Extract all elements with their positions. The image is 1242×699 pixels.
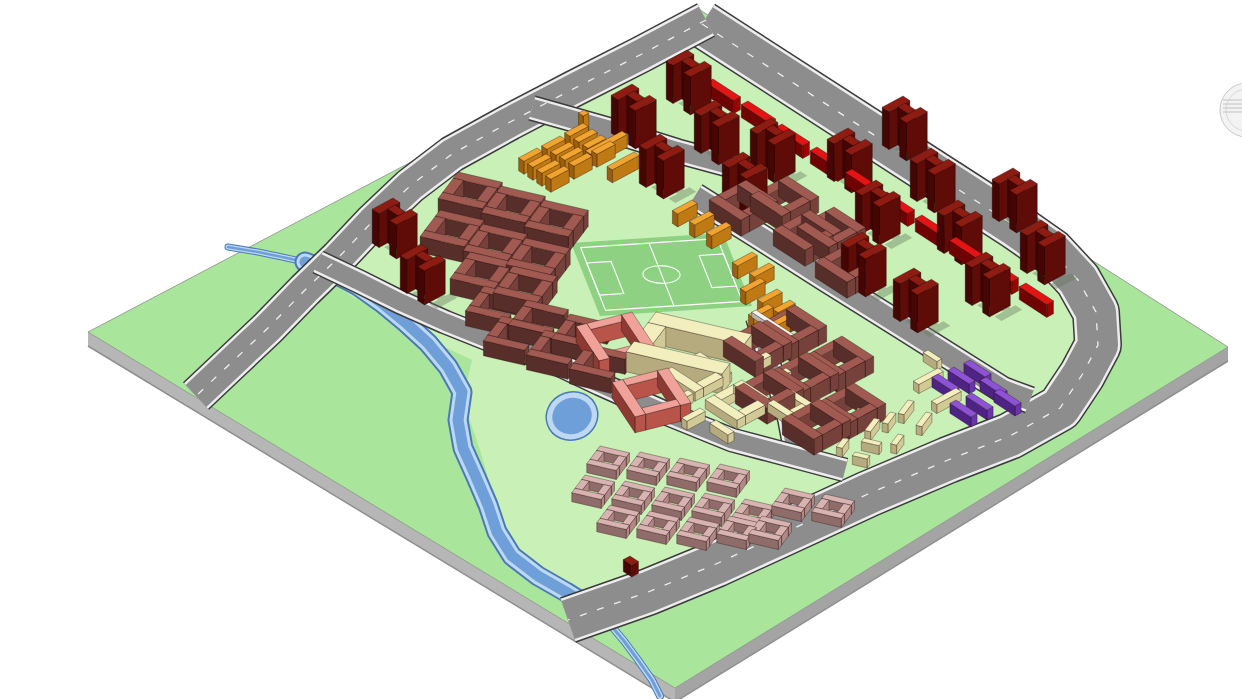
building-block[interactable]	[418, 266, 425, 304]
building-block[interactable]	[882, 107, 889, 149]
building-block[interactable]	[1010, 190, 1017, 232]
building-block[interactable]	[666, 61, 673, 103]
building-block[interactable]	[882, 423, 888, 433]
building-block[interactable]	[893, 279, 900, 321]
building-block[interactable]	[873, 202, 880, 244]
building-block[interactable]	[992, 179, 999, 221]
building-block[interactable]	[629, 106, 636, 148]
building-block[interactable]	[684, 72, 691, 114]
building-block[interactable]	[611, 95, 618, 137]
building-block[interactable]	[836, 447, 842, 457]
cad-viewport[interactable]	[0, 0, 1242, 699]
building-block[interactable]	[916, 425, 922, 435]
building-block[interactable]	[891, 444, 897, 454]
building-block[interactable]	[768, 140, 775, 182]
building-block[interactable]	[372, 209, 379, 247]
building-block[interactable]	[859, 254, 866, 296]
building-block[interactable]	[657, 156, 664, 198]
building-block[interactable]	[1020, 231, 1027, 273]
navigation-wheel-icon[interactable]	[1220, 83, 1242, 137]
building-block[interactable]	[827, 139, 834, 181]
soccer-field	[571, 233, 752, 316]
site-model-canvas[interactable]	[0, 0, 1242, 699]
building-block[interactable]	[965, 263, 972, 305]
building-block[interactable]	[390, 220, 397, 258]
building-block[interactable]	[639, 145, 646, 187]
building-block[interactable]	[910, 159, 917, 201]
building-block[interactable]	[635, 414, 646, 433]
building-block[interactable]	[928, 170, 935, 212]
building-block[interactable]	[1038, 242, 1045, 284]
building-block[interactable]	[898, 413, 904, 423]
building-block[interactable]	[983, 274, 990, 316]
building-block[interactable]	[937, 211, 944, 253]
building-block[interactable]	[911, 290, 918, 332]
building-block[interactable]	[694, 111, 701, 153]
building-block[interactable]	[400, 255, 407, 293]
building-block[interactable]	[712, 122, 719, 164]
building-block[interactable]	[900, 118, 907, 160]
